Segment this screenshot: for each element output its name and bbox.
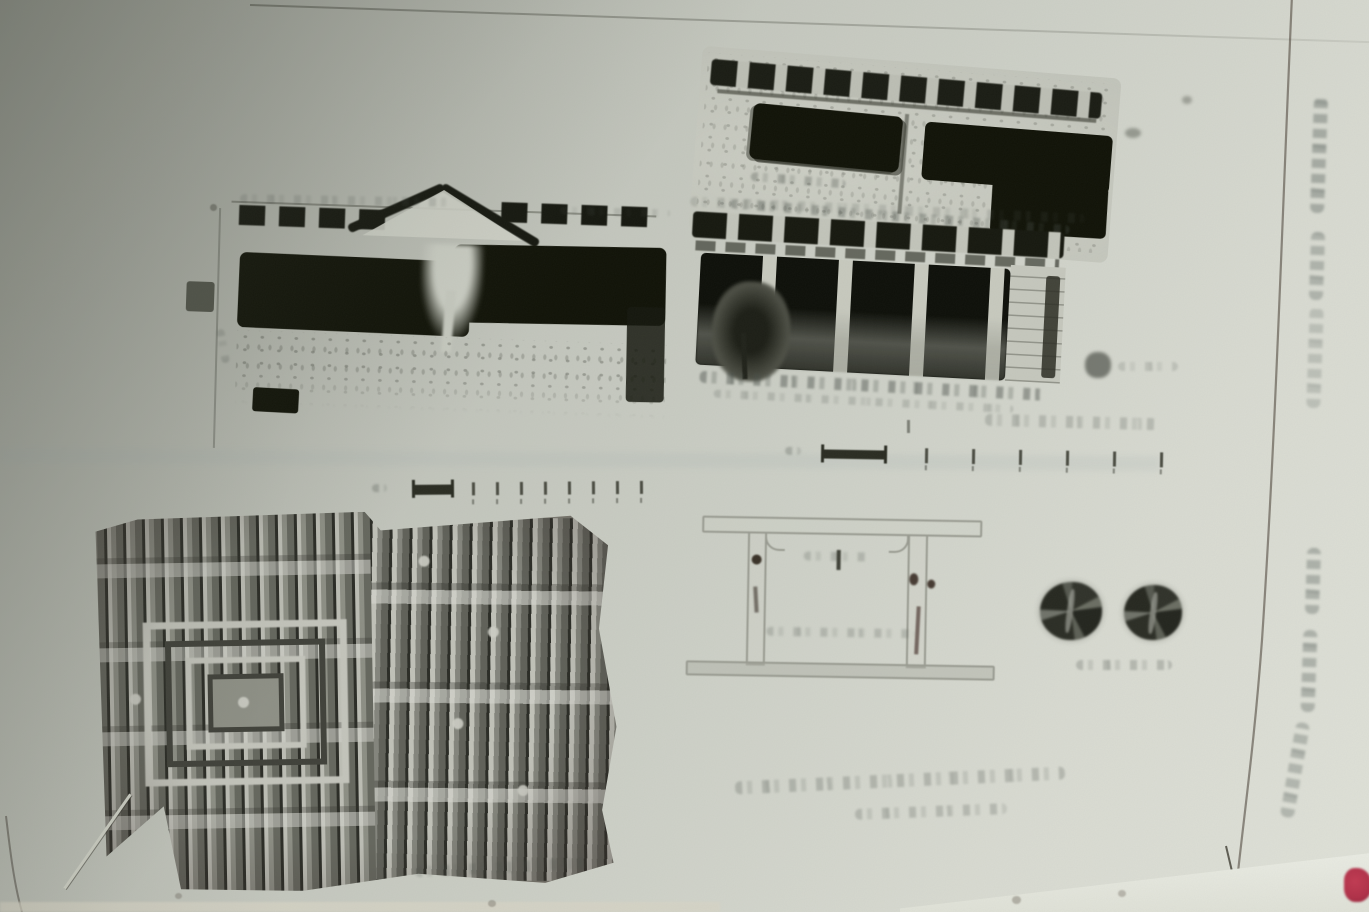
ink-dot (927, 580, 935, 589)
fore-edge-wedge (900, 842, 1369, 912)
dust-dot (488, 900, 496, 907)
dust-dot (1118, 890, 1126, 897)
graphic-scalebar-right (785, 441, 1153, 477)
scalebar-zero-label (372, 484, 387, 492)
center-tick (836, 550, 840, 570)
faint-inner-caption (766, 627, 914, 639)
coffered-wood-ceiling-photo (85, 507, 620, 894)
caption-above-scalebar (985, 414, 1157, 430)
bracket-right (889, 535, 909, 553)
ink-smudge (1085, 352, 1111, 378)
faint-label (1118, 362, 1178, 371)
bracket-left (765, 533, 785, 551)
bottom-left-ink-rect (252, 387, 299, 413)
scalebar-tick (472, 482, 475, 495)
scalebar-tick (1066, 451, 1069, 466)
margin-text-segment (1310, 98, 1328, 213)
margin-text-segment (1280, 722, 1310, 819)
ink-smudge (1182, 96, 1192, 104)
lintel (702, 516, 982, 538)
scalebar-ticks (472, 481, 643, 495)
dimension-hook (210, 204, 217, 211)
scalebar-tick (520, 482, 523, 495)
ink-smudge (1125, 128, 1141, 138)
scalebar-tick (544, 482, 547, 495)
scalebar-tick (592, 481, 595, 494)
carved-roundel (1040, 582, 1102, 640)
interior-speckle (234, 330, 666, 420)
threshold-base (686, 660, 995, 680)
margin-text-segment (1301, 630, 1318, 712)
scalebar-tick (616, 481, 619, 494)
margin-text-segment (1306, 308, 1323, 408)
carved-roundel-pair (1040, 582, 1182, 640)
dust-dot (1012, 896, 1021, 904)
carved-roundel (1124, 585, 1182, 640)
right-column-mass (626, 307, 666, 403)
scalebar-tick (925, 448, 928, 463)
photo-vignette (85, 507, 620, 894)
red-ink-smudge (1344, 868, 1369, 902)
scalebar-tick (496, 482, 499, 495)
scalebar-ticks (925, 448, 1163, 467)
figure-caption-line-2 (855, 803, 1007, 820)
photographed-book-page (0, 0, 1369, 912)
margin-text-segment (1305, 548, 1321, 614)
scalebar-tick (640, 481, 643, 494)
scalebar-filled-block (412, 485, 454, 495)
page-top-edge (250, 4, 1369, 43)
portico-elevation-photo (683, 212, 1072, 422)
bottom-light-strip (0, 902, 720, 912)
caption-under-roundels (1076, 660, 1172, 670)
scalebar-tick (1019, 450, 1022, 465)
left-jamb-block (186, 281, 215, 312)
scalebar-filled-block (821, 449, 887, 459)
scalebar-tick (1160, 452, 1163, 467)
scalebar-zero-label (785, 447, 801, 455)
figure-caption-line-1 (735, 767, 1065, 795)
scalebar-tick (972, 449, 975, 464)
door-frame-line-drawing (693, 497, 986, 697)
scalebar-tick (1113, 452, 1116, 467)
scalebar-tick (568, 482, 571, 495)
dust-dot (175, 893, 182, 899)
margin-text-segment (1309, 232, 1325, 300)
lone-tick-mark (907, 420, 910, 433)
graphic-scalebar-left (372, 476, 657, 506)
